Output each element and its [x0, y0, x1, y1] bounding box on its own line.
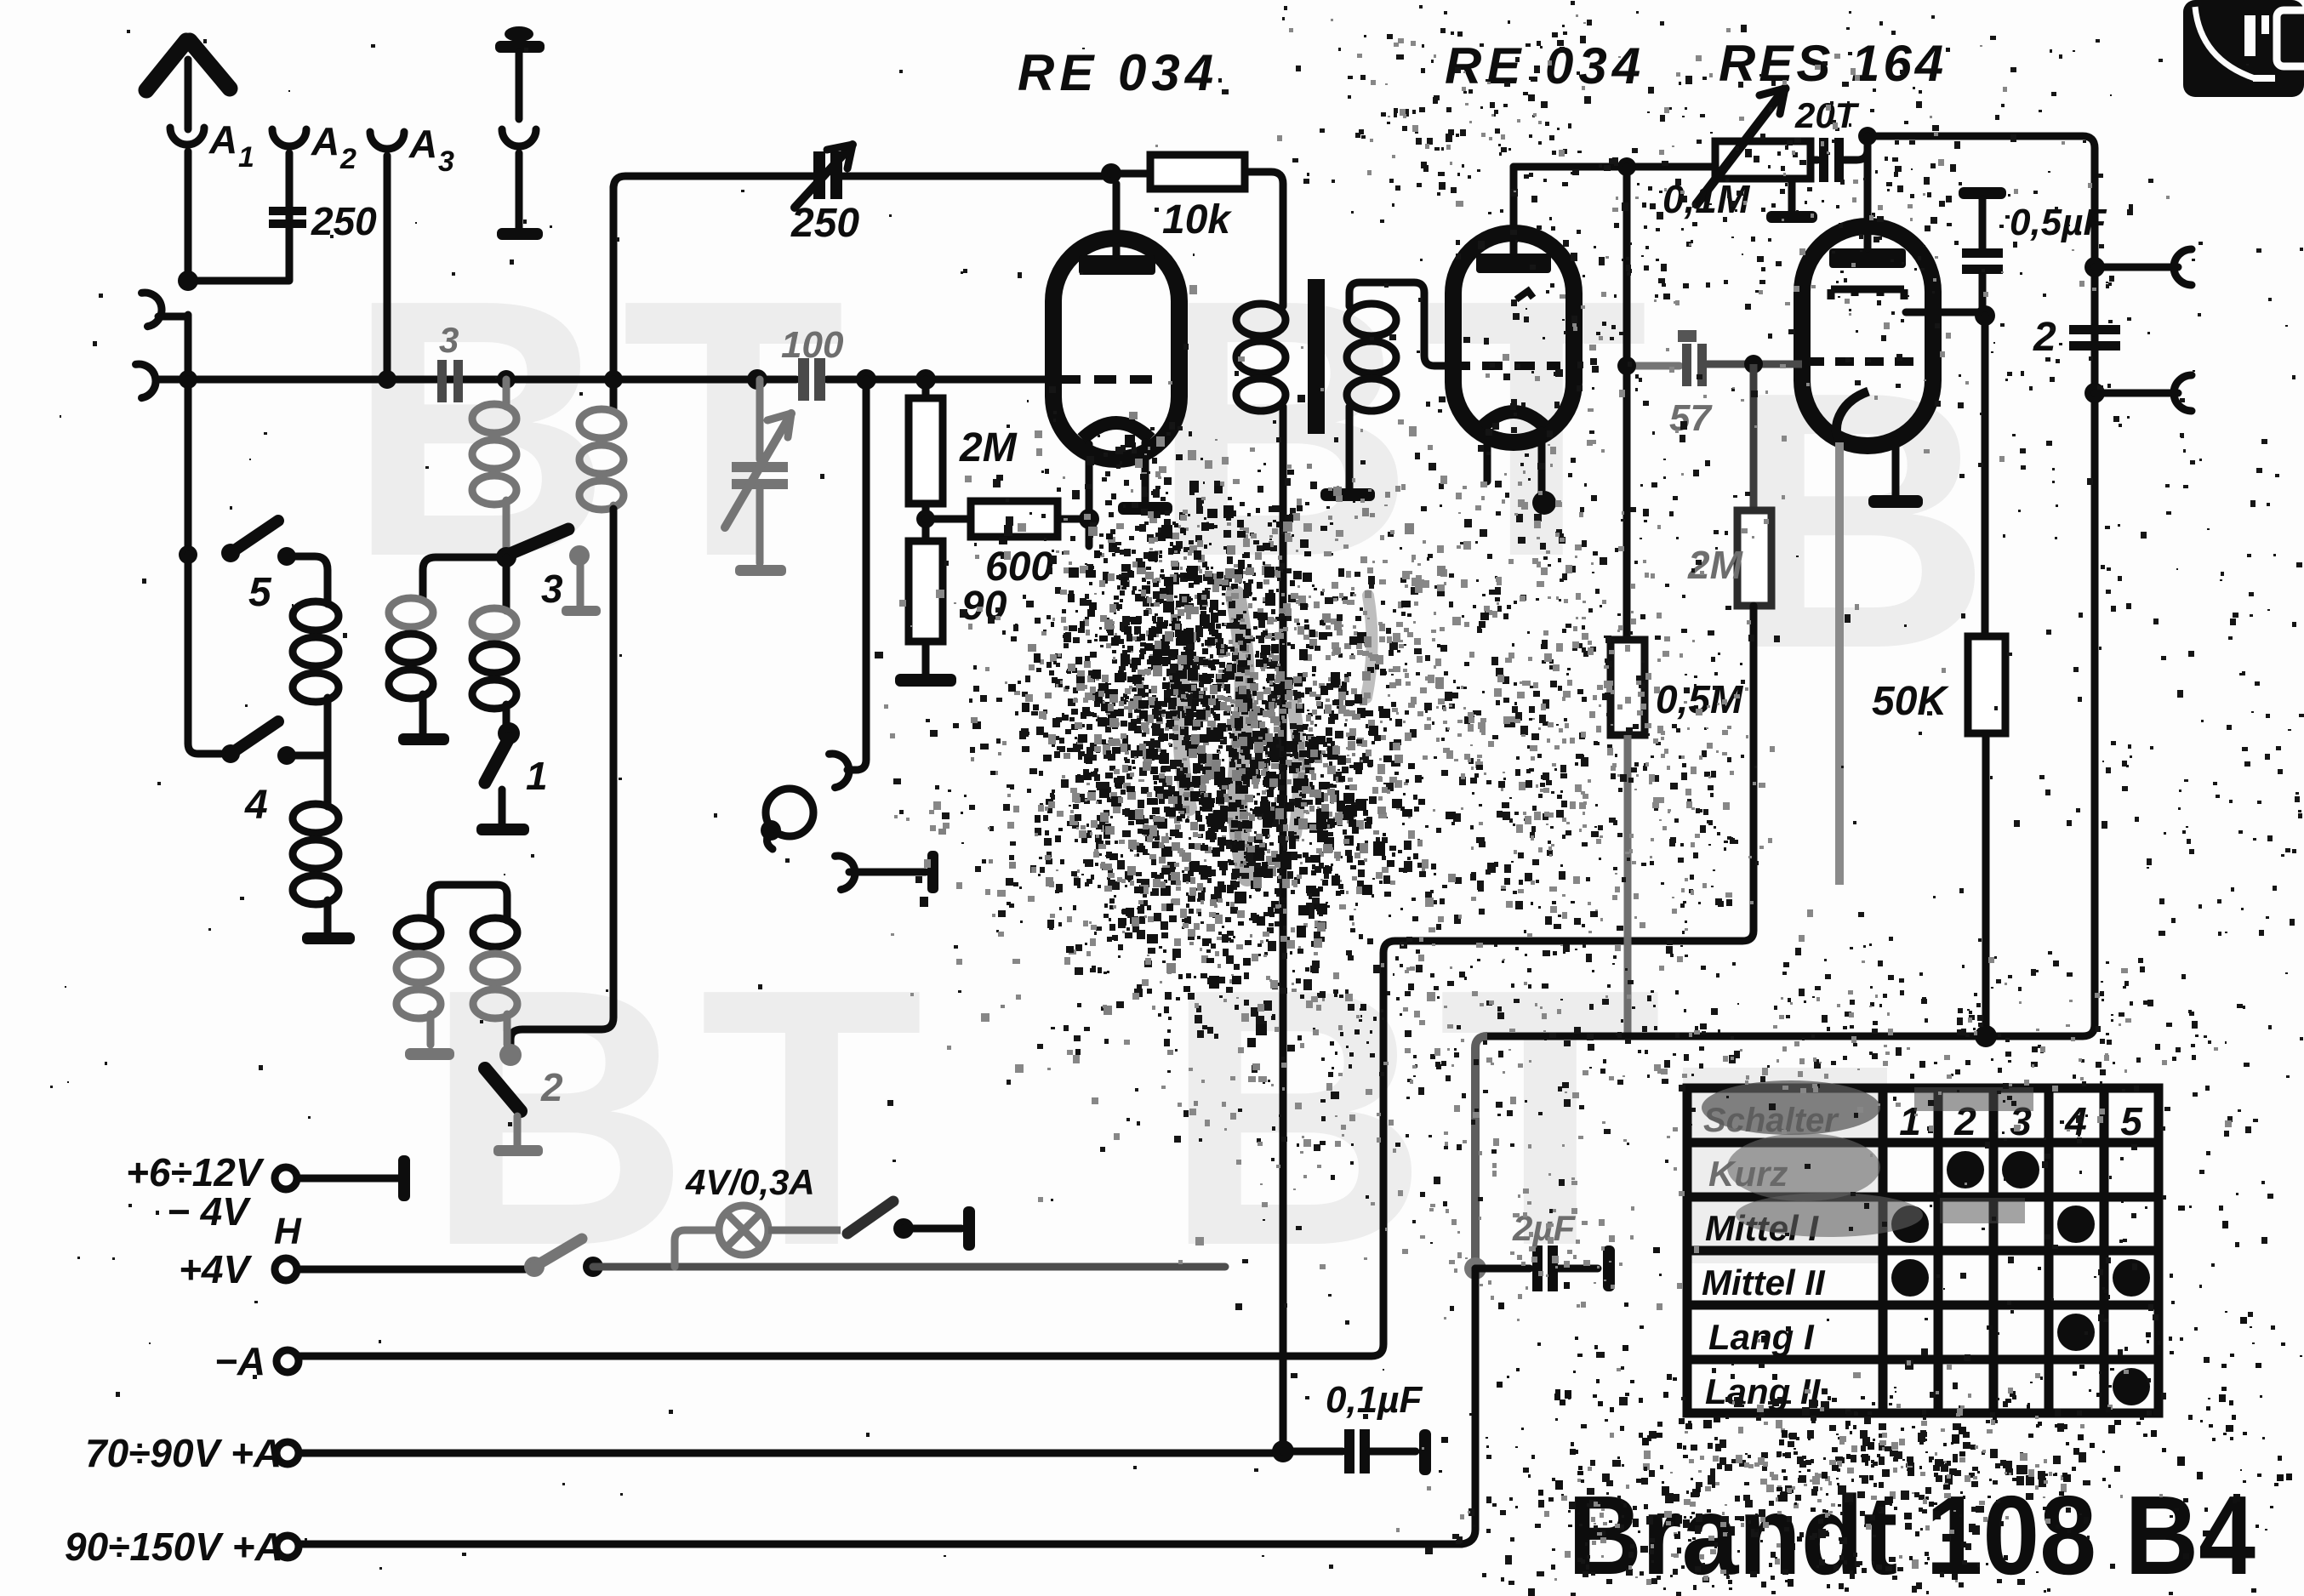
svg-text:2M: 2M — [959, 425, 1018, 470]
svg-text:4V/0,3A: 4V/0,3A — [685, 1162, 815, 1202]
svg-text:70÷90V +A: 70÷90V +A — [85, 1431, 282, 1475]
svg-text:100: 100 — [781, 324, 844, 366]
svg-text:0,1µF: 0,1µF — [1326, 1379, 1423, 1421]
svg-text:20T: 20T — [1794, 95, 1860, 135]
svg-text:250: 250 — [790, 201, 859, 246]
svg-text:0,5µF: 0,5µF — [2010, 202, 2107, 243]
svg-text:1: 1 — [526, 754, 548, 798]
svg-text:+6÷12V: +6÷12V — [126, 1150, 265, 1194]
svg-text:4: 4 — [244, 783, 268, 828]
svg-text:1: 1 — [238, 141, 254, 174]
svg-text:−A: −A — [214, 1339, 265, 1383]
svg-text:H: H — [274, 1211, 302, 1252]
svg-text:+4V: +4V — [179, 1247, 252, 1291]
svg-text:− 4V: − 4V — [167, 1189, 251, 1234]
svg-text:250: 250 — [311, 199, 377, 243]
svg-text:BT: BT — [1164, 914, 1672, 1322]
svg-text:5: 5 — [2120, 1099, 2143, 1143]
svg-text:3: 3 — [541, 567, 563, 611]
svg-text:Brandt 108 B4: Brandt 108 B4 — [1568, 1473, 2256, 1596]
svg-text:3: 3 — [438, 145, 454, 178]
svg-text:5: 5 — [248, 570, 272, 615]
svg-text:A: A — [208, 117, 237, 162]
svg-text:90: 90 — [961, 584, 1007, 629]
svg-text:2: 2 — [540, 1065, 563, 1109]
svg-text:Mittel II: Mittel II — [1702, 1263, 1826, 1302]
svg-text:A: A — [408, 122, 437, 166]
svg-text:2: 2 — [339, 143, 356, 175]
svg-text:3: 3 — [439, 320, 459, 360]
svg-text:50K: 50K — [1872, 679, 1949, 724]
svg-text:A: A — [311, 119, 339, 163]
svg-text:RE 034: RE 034 — [1445, 37, 1645, 94]
svg-text:90÷150V +A: 90÷150V +A — [65, 1525, 283, 1569]
svg-text:BT: BT — [425, 914, 933, 1322]
svg-text:2µF: 2µF — [1512, 1208, 1577, 1248]
svg-text:RE 034: RE 034 — [1018, 44, 1218, 101]
svg-text:4: 4 — [2064, 1099, 2087, 1143]
svg-text:10k: 10k — [1162, 197, 1232, 242]
svg-text:RES 164: RES 164 — [1719, 35, 1947, 92]
